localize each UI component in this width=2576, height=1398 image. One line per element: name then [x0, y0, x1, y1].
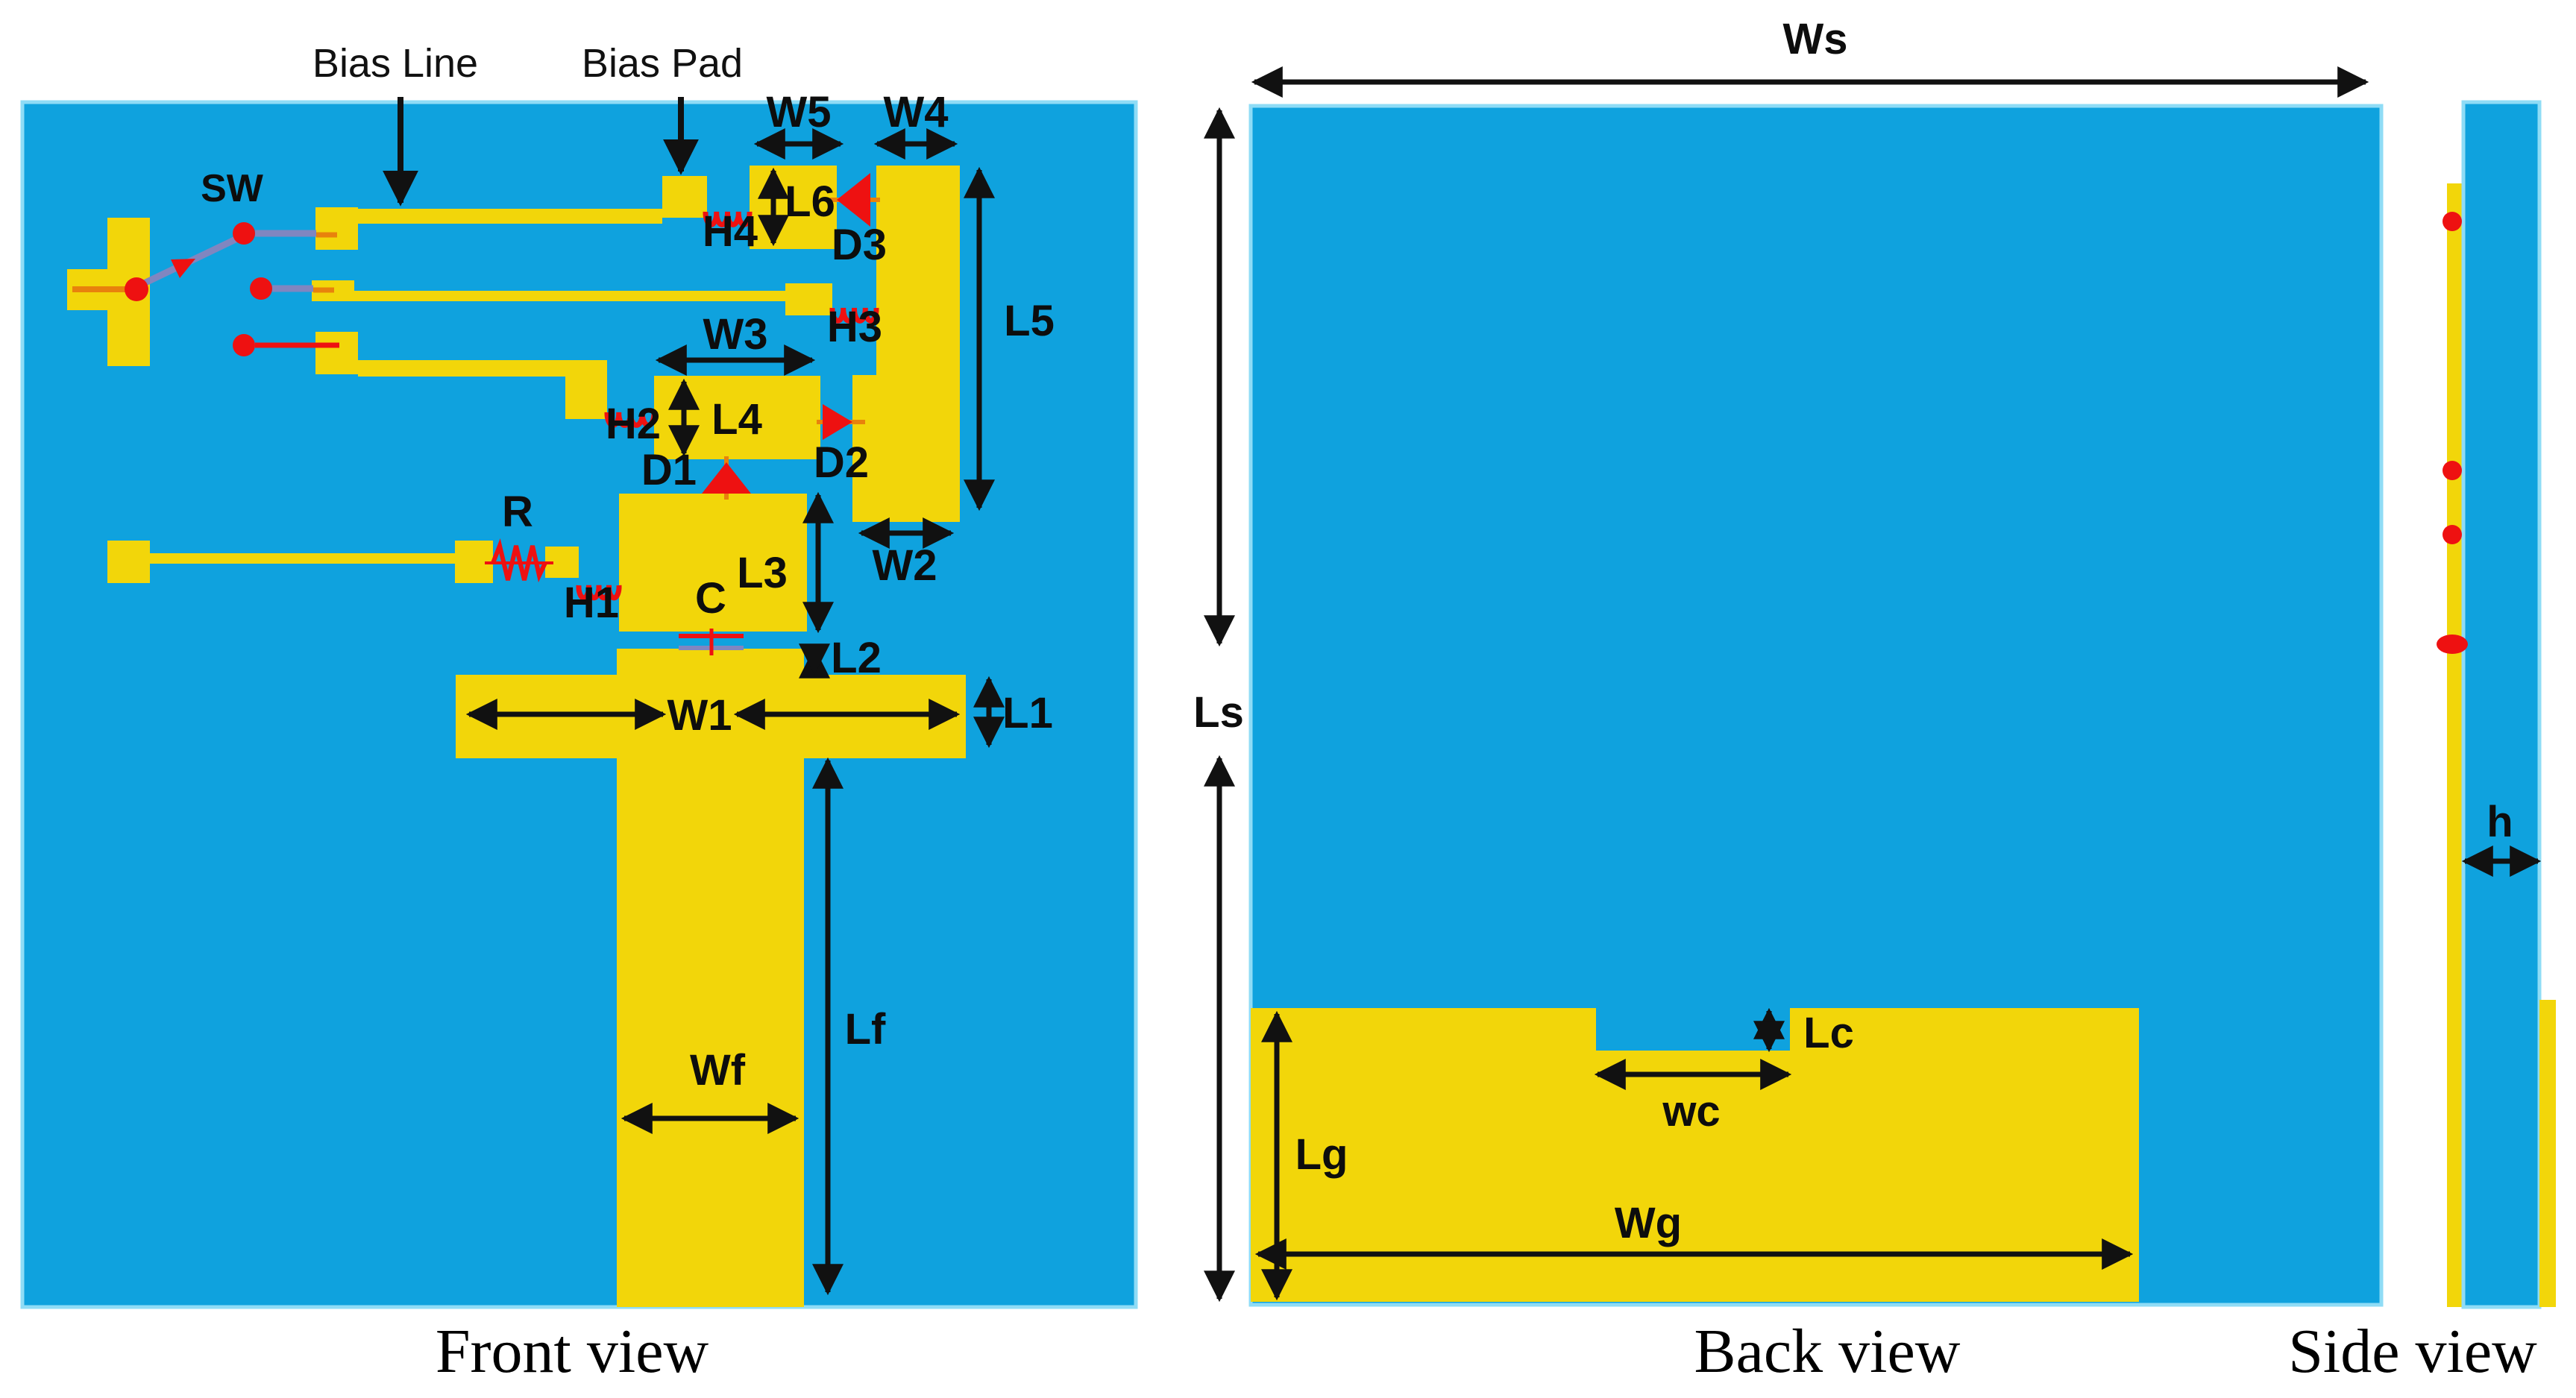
bias-pad-row2-right	[785, 283, 832, 315]
h2-label: H2	[606, 400, 661, 448]
bias-pad-top	[662, 176, 707, 218]
l5-label: L5	[1004, 297, 1055, 345]
l2-label: L2	[831, 634, 882, 682]
h-label: h	[2487, 798, 2513, 846]
bias-line-2	[354, 291, 785, 301]
w5-label: W5	[767, 88, 832, 136]
sw-label: SW	[201, 167, 264, 210]
l6-label: L6	[785, 177, 835, 226]
r-label: R	[502, 488, 533, 536]
wc-label: wc	[1662, 1087, 1720, 1136]
switch-contact1-dot-icon	[233, 222, 255, 245]
switch-contact3-dot-icon	[233, 334, 255, 356]
side-ground-strip	[2539, 1000, 2556, 1307]
h1-label: H1	[564, 579, 619, 627]
w4-label: W4	[884, 88, 949, 136]
front-view: Bias Line Bias Pad SW W5 W4 L6 H4 D3 H3 …	[22, 41, 1136, 1386]
wf-label: Wf	[690, 1046, 746, 1095]
bias-line-3-stub	[565, 360, 607, 419]
lf-label: Lf	[845, 1005, 886, 1054]
l4-label: L4	[711, 395, 762, 444]
lg-label: Lg	[1295, 1130, 1348, 1179]
side-substrate	[2463, 102, 2539, 1307]
d2-label: D2	[814, 438, 869, 487]
h3-label: H3	[827, 303, 882, 351]
h4-label: H4	[703, 207, 758, 256]
back-view-caption: Back view	[1694, 1317, 1961, 1386]
bias-pad-label: Bias Pad	[582, 41, 743, 86]
bias-pad-row3-left	[315, 332, 358, 374]
bias-pad-row1-left	[315, 207, 358, 250]
switch-pole-dot-icon	[125, 277, 148, 301]
w1-label: W1	[667, 691, 732, 740]
bias-pad-row4-left	[107, 541, 150, 583]
switch-contact2-dot-icon	[250, 277, 272, 300]
bias-line-1	[358, 209, 662, 224]
c-label: C	[695, 574, 726, 623]
side-component-dot-icon	[2443, 212, 2462, 231]
d1-label: D1	[641, 446, 697, 494]
ws-label: Ws	[1783, 15, 1848, 63]
side-front-copper-strip	[2447, 183, 2463, 1307]
antenna-layout-diagram: Bias Line Bias Pad SW W5 W4 L6 H4 D3 H3 …	[0, 0, 2576, 1398]
bias-line-label: Bias Line	[312, 41, 478, 86]
side-component-dot-icon	[2443, 525, 2462, 544]
ls-label: Ls	[1193, 688, 1244, 737]
feed-line	[617, 758, 804, 1307]
side-component-dot-icon	[2437, 635, 2468, 654]
bias-line-4	[150, 553, 455, 564]
side-component-dot-icon	[2443, 461, 2462, 480]
back-view: Ws Ls Lg Wg Lc wc Back view	[1193, 15, 2381, 1386]
lc-label: Lc	[1803, 1009, 1854, 1057]
w3-label: W3	[703, 310, 768, 359]
front-view-caption: Front view	[436, 1317, 709, 1386]
d3-label: D3	[832, 221, 887, 269]
side-view-caption: Side view	[2288, 1317, 2537, 1386]
l3-label: L3	[737, 549, 788, 597]
l1-label: L1	[1002, 689, 1053, 737]
wg-label: Wg	[1615, 1199, 1682, 1247]
ground-plane	[1251, 1008, 2139, 1302]
w2-label: W2	[873, 541, 937, 590]
